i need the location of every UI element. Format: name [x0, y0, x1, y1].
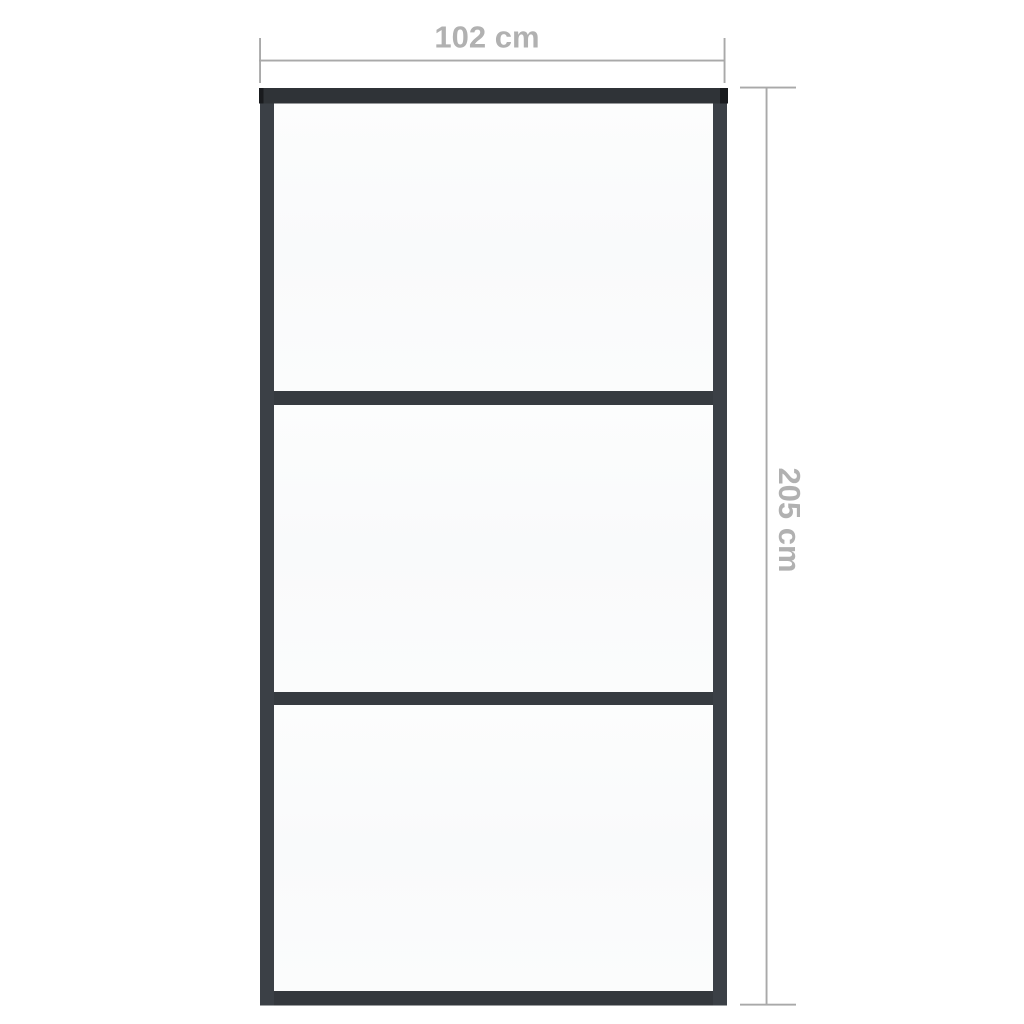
svg-text:205 cm: 205 cm	[772, 467, 807, 572]
svg-text:102 cm: 102 cm	[434, 20, 539, 55]
